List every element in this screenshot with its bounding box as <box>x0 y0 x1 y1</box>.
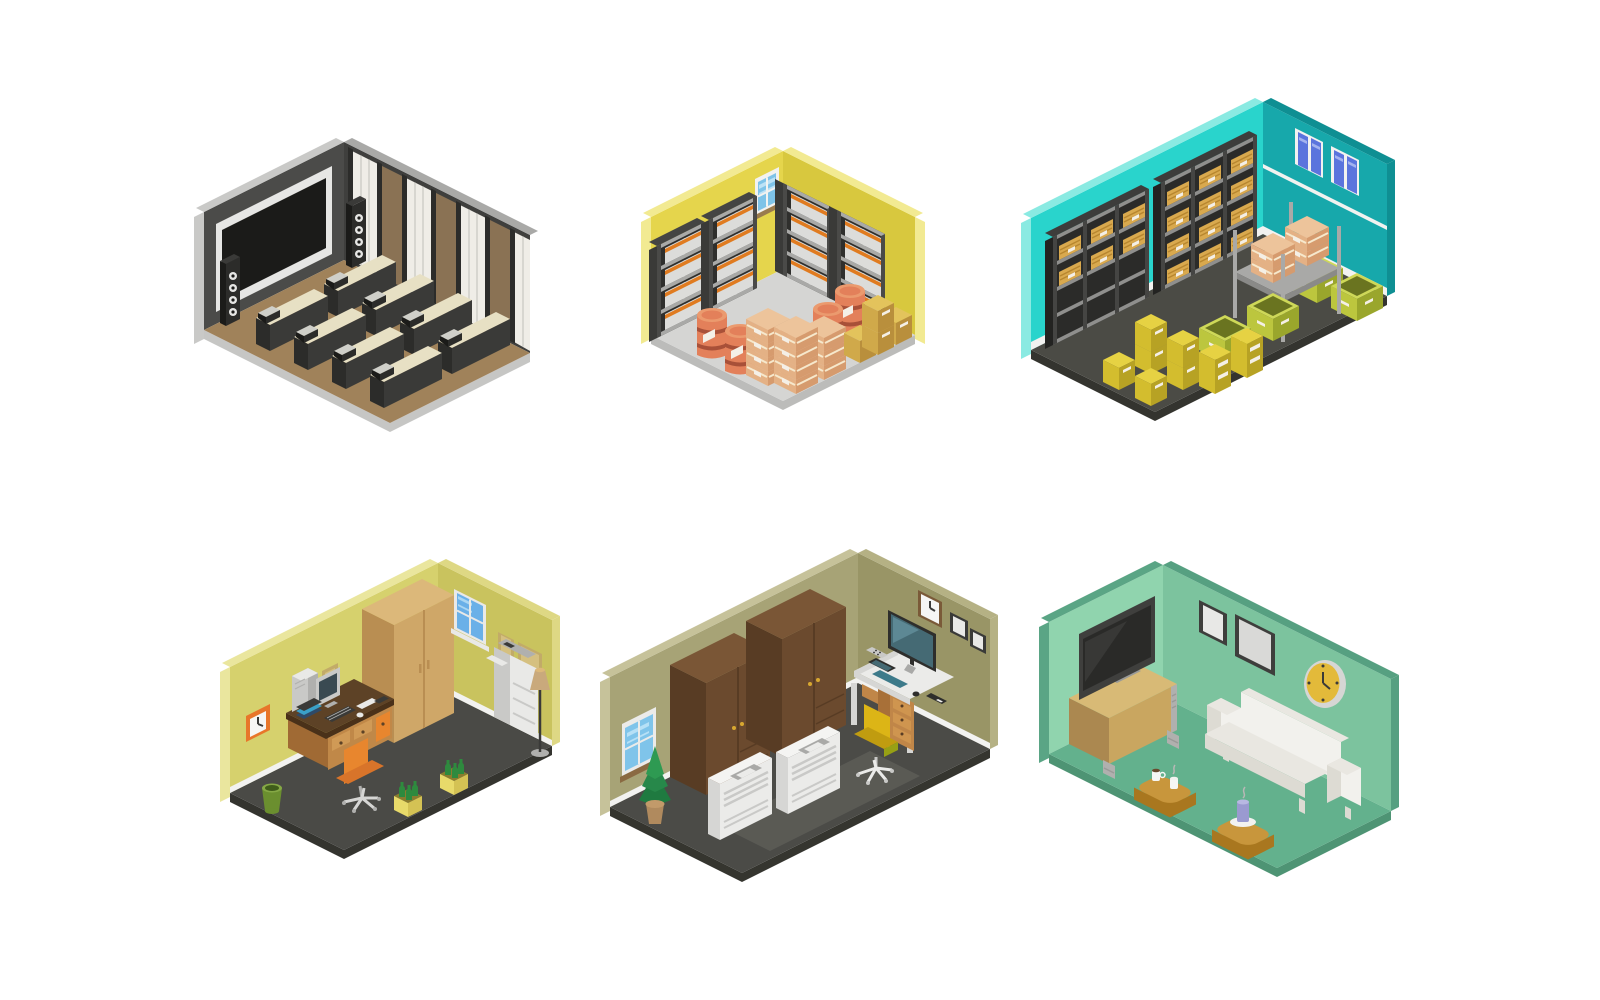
wall-clock <box>1304 660 1346 708</box>
room-office <box>570 538 998 888</box>
isometric-rooms-grid <box>0 0 1600 1000</box>
room-warehouse <box>995 90 1395 430</box>
room-home-theater <box>192 132 547 437</box>
room-home-office <box>188 548 566 868</box>
room-storage <box>600 133 960 433</box>
room-living <box>1015 550 1401 885</box>
trash-bin <box>262 784 282 815</box>
